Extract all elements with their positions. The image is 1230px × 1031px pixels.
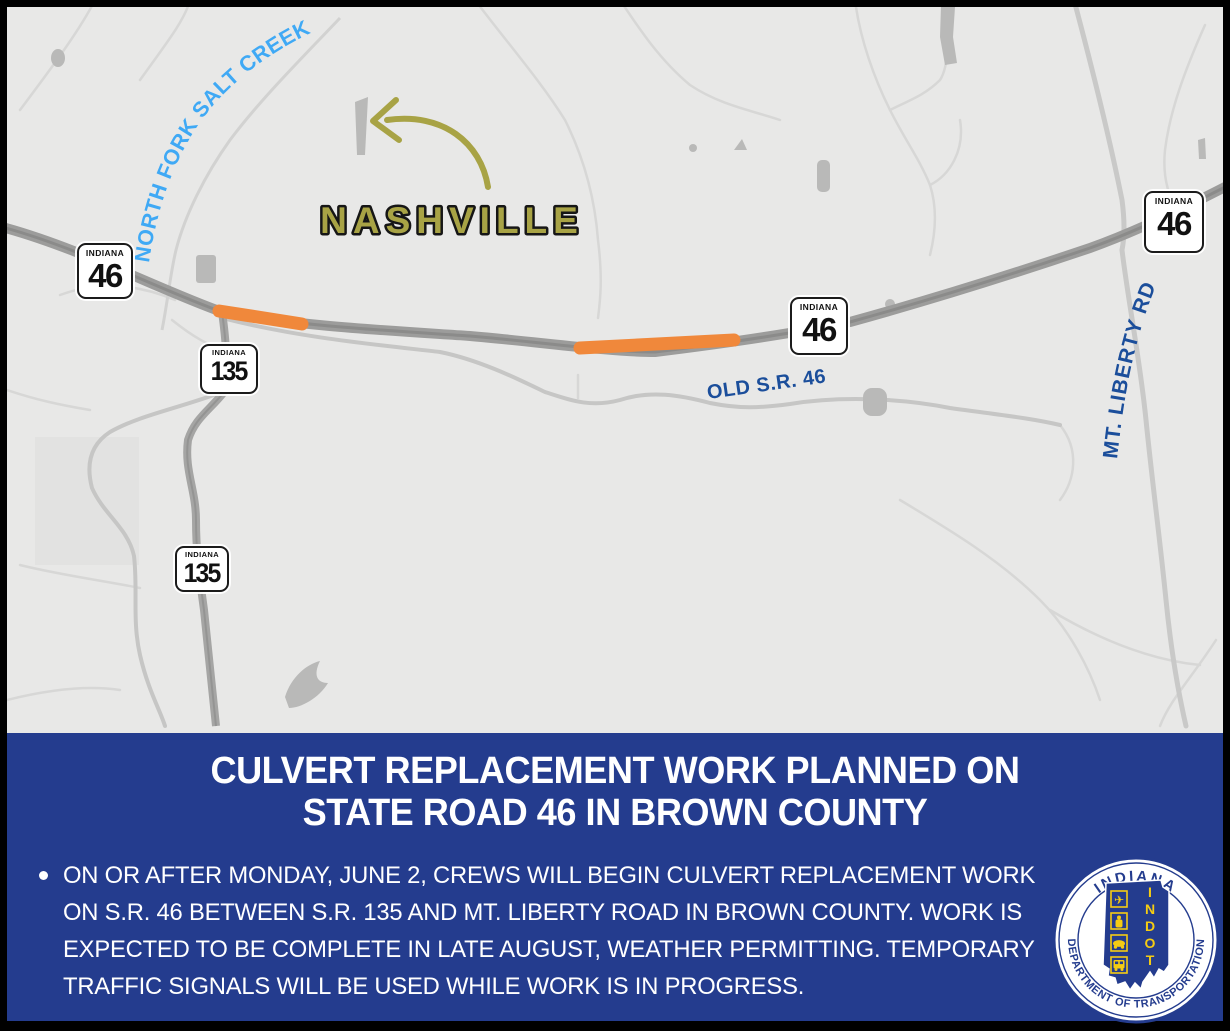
shield-route-number: 46 <box>88 259 122 292</box>
banner-title-line-2: STATE ROAD 46 IN BROWN COUNTY <box>37 792 1192 834</box>
route-shield-46-east: INDIANA 46 <box>1144 191 1204 253</box>
old-sr46-road <box>222 318 1060 425</box>
map-drawing: NORTH FORK SALT CREEK MT. LIBERTY RD OLD… <box>7 7 1223 733</box>
bullet-line-3: EXPECTED TO BE COMPLETE IN LATE AUGUST, … <box>63 931 1035 968</box>
banner-title-line-1: CULVERT REPLACEMENT WORK PLANNED ON <box>37 750 1192 792</box>
route-shield-46-west: INDIANA 46 <box>77 243 133 299</box>
indot-logo: INDIANA DEPARTMENT OF TRANSPORTATION ✈ <box>1051 855 1221 1025</box>
route-shield-135-north: INDIANA 135 <box>200 344 258 394</box>
bullet-line-2: ON S.R. 46 BETWEEN S.R. 135 AND MT. LIBE… <box>63 894 1035 931</box>
banner-title: CULVERT REPLACEMENT WORK PLANNED ON STAT… <box>37 750 1192 834</box>
work-zone-segments <box>219 311 734 348</box>
shield-route-number: 46 <box>1157 207 1191 240</box>
land-parcel <box>35 437 139 565</box>
svg-text:O: O <box>1145 935 1156 951</box>
svg-text:N: N <box>1145 901 1155 917</box>
route-shield-135-south: INDIANA 135 <box>175 546 229 592</box>
bullet-dot-icon <box>39 871 48 880</box>
city-label-nashville: NASHVILLE <box>320 200 584 241</box>
bullet-line-1: ON OR AFTER MONDAY, JUNE 2, CREWS WILL B… <box>63 857 1035 894</box>
work-zone-east <box>580 340 734 348</box>
banner-bullet-text: ON OR AFTER MONDAY, JUNE 2, CREWS WILL B… <box>63 857 1035 1005</box>
map-area: NORTH FORK SALT CREEK MT. LIBERTY RD OLD… <box>7 7 1223 733</box>
shield-route-number: 46 <box>802 313 836 346</box>
shield-route-number: 135 <box>211 358 247 385</box>
route-shield-46-middle: INDIANA 46 <box>790 297 848 355</box>
mt-liberty-label: MT. LIBERTY RD <box>1099 278 1161 459</box>
info-banner: CULVERT REPLACEMENT WORK PLANNED ON STAT… <box>7 733 1223 1021</box>
old-sr46-label: OLD S.R. 46 <box>706 365 828 403</box>
banner-bullet-item: ON OR AFTER MONDAY, JUNE 2, CREWS WILL B… <box>39 857 1065 1005</box>
svg-text:D: D <box>1145 918 1155 934</box>
graphic-frame: NORTH FORK SALT CREEK MT. LIBERTY RD OLD… <box>7 7 1223 1021</box>
svg-text:I: I <box>1148 884 1152 900</box>
shield-route-number: 135 <box>184 560 220 587</box>
plane-icon: ✈ <box>1114 893 1124 907</box>
bullet-line-4: TRAFFIC SIGNALS WILL BE USED WHILE WORK … <box>63 968 1035 1005</box>
creek-label: NORTH FORK SALT CREEK <box>130 16 314 264</box>
nashville-arrow-icon <box>373 100 488 187</box>
svg-text:T: T <box>1146 952 1155 968</box>
